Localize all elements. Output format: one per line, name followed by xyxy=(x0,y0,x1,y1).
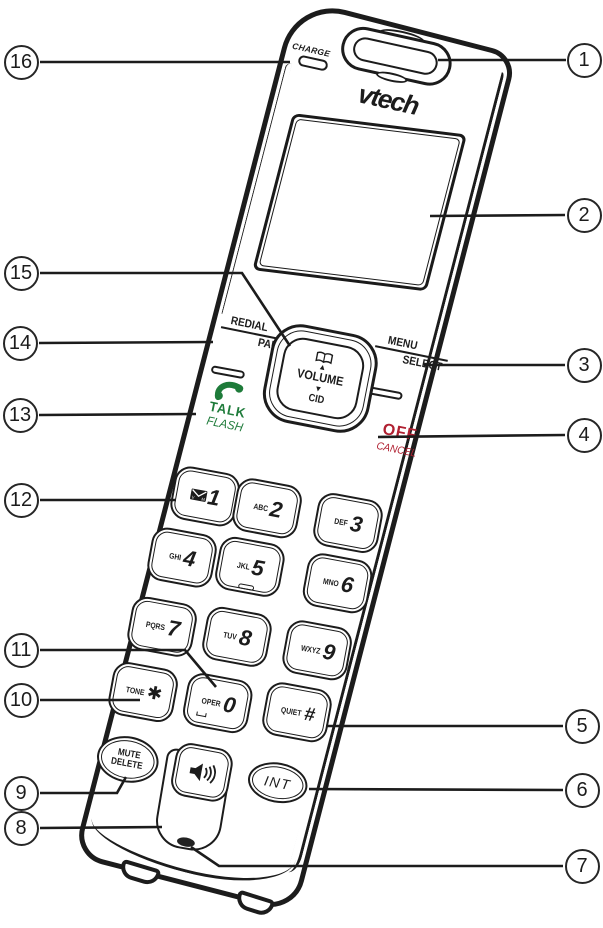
off-cancel-button: OFF CANCEL xyxy=(358,417,439,464)
callout-13-circle: 13 xyxy=(3,398,38,433)
mute-delete-face: MUTE DELETE xyxy=(98,736,158,783)
callout-14-line xyxy=(39,342,213,343)
key-digit: 7 xyxy=(166,617,182,641)
callout-12-circle: 12 xyxy=(4,483,39,518)
key-3-def: DEF3 xyxy=(311,490,386,555)
key-digit: 2 xyxy=(268,498,284,522)
key-face: GHI4 xyxy=(149,530,214,586)
key-letters: QUIET xyxy=(280,705,302,718)
key-digit: # xyxy=(303,704,317,725)
display-screen xyxy=(252,113,467,291)
key-5-jkl: JKL5 xyxy=(213,534,288,599)
menu-select-button: MENU SELECT xyxy=(372,332,450,374)
key-letters: TUV xyxy=(223,630,238,641)
int-label: INT xyxy=(263,772,293,793)
callout-1-circle: 1 xyxy=(567,43,602,78)
key-hash-quiet: QUIET# xyxy=(260,680,335,745)
key-digit: 3 xyxy=(348,513,364,537)
key-7-pqrs: PQRS7 xyxy=(125,594,200,659)
callout-6-line xyxy=(309,789,563,790)
speakerphone-button xyxy=(168,741,235,805)
callout-13-line xyxy=(39,414,196,415)
display-screen-inner-frame xyxy=(259,119,461,286)
callout-8-circle: 8 xyxy=(4,811,39,846)
key-face: JKL5 xyxy=(217,539,282,595)
key-face: ABC2 xyxy=(234,480,299,536)
callout-7-circle: 7 xyxy=(565,849,600,884)
mute-delete-button: MUTE DELETE xyxy=(93,731,162,788)
key-face: TONE✱ xyxy=(110,664,175,720)
callout-10-circle: 10 xyxy=(4,683,39,718)
key-letters: DEF xyxy=(334,516,349,527)
callout-9-circle: 9 xyxy=(4,776,39,811)
key-2-abc: ABC2 xyxy=(230,476,305,541)
key-letters: OPER xyxy=(201,696,222,708)
key-letters: TONE xyxy=(125,685,145,697)
key-star-tone: TONE✱ xyxy=(106,660,181,725)
callout-11-circle: 11 xyxy=(4,633,39,668)
key-digit: ✱ xyxy=(145,684,163,704)
right-key-separator xyxy=(368,386,403,400)
nav-face: ▲ VOLUME ▼ CID xyxy=(273,334,368,422)
handset-foot-right xyxy=(234,889,276,918)
key-6-mno: MNO6 xyxy=(300,551,375,616)
key-letters: MNO xyxy=(322,576,339,588)
handset-diagram: CHARGE vtech REDIAL PAUSE MENU SELECT xyxy=(0,0,603,928)
key-1: VM1 xyxy=(168,464,243,529)
key-digit: 8 xyxy=(237,626,253,650)
key-letters: WXYZ xyxy=(300,643,321,655)
callout-3-circle: 3 xyxy=(567,348,602,383)
callout-4-circle: 4 xyxy=(567,418,602,453)
key-face: PQRS7 xyxy=(129,599,194,655)
talk-flash-button: TALK FLASH xyxy=(183,373,274,439)
speakerphone-face xyxy=(173,745,231,799)
key-0-oper: OPER0 xyxy=(180,671,255,736)
key-letters: GHI xyxy=(169,551,183,562)
key-digit: 5 xyxy=(250,556,266,580)
callout-5-circle: 5 xyxy=(565,709,600,744)
key-letters: PQRS xyxy=(145,619,166,631)
key-digit: 6 xyxy=(339,573,355,597)
key-face: WXYZ9 xyxy=(284,622,349,678)
intercom-face: INT xyxy=(249,762,306,803)
key-9-wxyz: WXYZ9 xyxy=(280,618,355,683)
key-face: MNO6 xyxy=(305,555,370,611)
key-digit: 9 xyxy=(321,641,337,665)
voicemail-envelope-icon: VM xyxy=(189,488,208,503)
key-face: DEF3 xyxy=(315,495,380,551)
key-8-tuv: TUV8 xyxy=(200,604,275,669)
key-face: TUV8 xyxy=(204,609,269,665)
callout-15-circle: 15 xyxy=(4,256,39,291)
key-digit: 1 xyxy=(206,486,222,510)
key-digit: 4 xyxy=(182,547,198,571)
intercom-button: INT xyxy=(245,758,311,808)
speakerphone-icon xyxy=(186,759,218,786)
key-letters: ABC xyxy=(253,501,269,513)
key-face: QUIET# xyxy=(264,684,329,740)
callout-6-circle: 6 xyxy=(565,773,600,808)
key-face: VM1 xyxy=(172,468,237,524)
key-4-ghi: GHI4 xyxy=(145,525,220,590)
cid-label: CID xyxy=(307,393,325,407)
callout-14-circle: 14 xyxy=(3,326,38,361)
callout-2-circle: 2 xyxy=(567,198,602,233)
key-digit: 0 xyxy=(221,693,237,717)
key-letters: JKL xyxy=(236,560,250,571)
handset-body: CHARGE vtech REDIAL PAUSE MENU SELECT xyxy=(73,0,518,914)
callout-16-circle: 16 xyxy=(4,45,39,80)
key-face: OPER0 xyxy=(185,675,250,731)
